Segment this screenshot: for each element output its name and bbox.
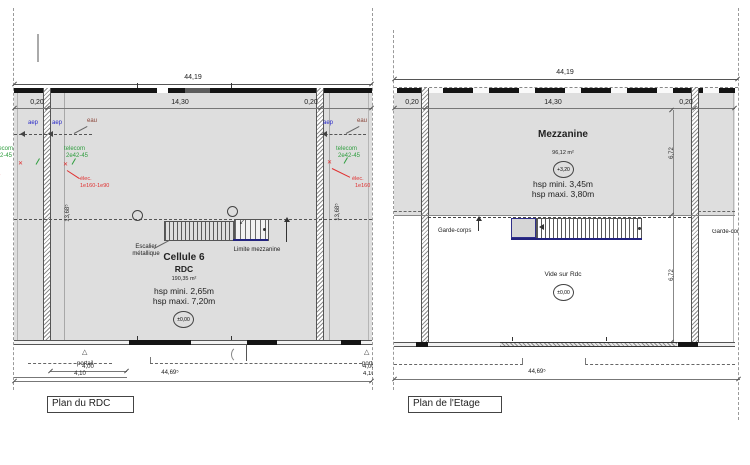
rdc-aep-line-left [14,134,92,135]
rdc-cut-line-right [372,8,373,390]
rdc-facade-mark [137,83,138,88]
grid-bubble [227,206,238,217]
rdc-facade-mark [231,83,232,88]
rdc-facade-mark [137,336,138,340]
etage-wall-bottom-panel [678,342,698,347]
rdc-room-name: Cellule 6 [134,252,234,264]
rdc-room-area: 190,35 m² [134,276,234,282]
etage-dim-line-top [394,79,738,80]
rdc-dim-line-depth-right [329,93,330,340]
etage-dim-void-depth: 6,72 [669,258,675,292]
rdc-opening-line [150,363,362,364]
etage-title: Plan de l'Etage [413,398,480,409]
etage-dim-total-top: 44,19 [515,69,615,77]
guardrail-label-left: Garde-corps [438,228,471,235]
rdc-line [368,93,369,340]
rdc-dim-line-gate2 [14,377,127,378]
rdc-wall-bottom-panel [341,340,361,345]
etage-hsp-max: hsp maxi. 3,80m [513,190,613,200]
etage-room-area: 96,12 m² [513,150,613,156]
stair-dot [638,227,641,230]
rdc-dim-depth-left: 13,68⁵ [65,196,71,230]
etage-stair-stringer [511,238,642,240]
rdc-dim-gate2: 4,10 [363,371,373,378]
rdc-extension-stub [37,34,39,62]
rdc-wall-bottom [14,340,372,345]
guardrail-line [394,211,421,212]
aep-label: aep [52,120,62,127]
rdc-dim-total-bottom: 44,69⁵ [140,370,200,377]
elec-label: élec. [352,176,364,182]
arrowhead-left [48,131,53,137]
elec-ref: 1e160-1e90 [80,183,109,189]
guardrail-arrow-line [478,221,479,231]
arrowhead-up [476,216,482,221]
gate-symbol: △ [364,349,369,357]
elec-label: élec. [80,176,92,182]
rdc-wall-bottom-panel [247,340,277,345]
etage-dim-wall-right: 0,20 [673,99,699,107]
etage-dim-bay: 14,30 [523,99,583,107]
etage-line [733,93,734,343]
floor-plan-sheet: 44,19 0,20 14,30 0,20 aep aep a [0,0,750,465]
etage-opening-line [394,364,523,365]
rdc-stair-stringer [233,239,268,241]
rdc-dim-gate1: 4,00 [363,364,373,371]
arrowhead-left [20,131,25,137]
arrowhead-up [284,217,290,222]
aep-label: aep [28,120,38,127]
etage-room-name: Mezzanine [513,129,613,141]
rdc-dim-depth-right: 13,68⁵ [335,195,341,229]
telecom-label: telecom [64,146,85,153]
grid-bubble [132,210,143,221]
elec-cross: ✕ [18,161,23,168]
etage-cut-line-right [738,8,739,420]
etage-opening-bracket [522,358,523,365]
telecom-ref: 2e42-45 [0,153,12,160]
elec-ref: 1e160 [355,183,370,189]
etage-wall-bottom-panel [416,342,428,347]
etage-mezz-edge [394,215,735,216]
rdc-dim-total-top: 44,19 [143,74,243,82]
rdc-title-box: Plan du RDC [47,396,134,413]
guardrail-label-right-clipped: Garde-corps [712,229,738,237]
downpipe-mark [512,337,513,341]
etage-dim-mezz-depth: 6,72 [669,136,675,170]
eau-label: eau [357,118,367,125]
etage-wall-bottom-hatched [500,342,677,347]
gate-symbol: △ [82,349,87,357]
etage-stair-landing [511,218,536,238]
elec-cross: ✕ [63,162,68,169]
rdc-party-wall-left [43,88,51,343]
rdc-room-level: RDC [134,265,234,275]
telecom-ref: 2e42-45 [338,153,360,160]
rdc-facade-mark [231,336,232,340]
rdc-dim-gate1: 4,00 [68,364,108,371]
tick [124,369,129,374]
guardrail-label-right: Garde-corps [712,229,738,236]
rdc-dim-gate2-clipped: 4,10 [363,371,373,379]
rdc-title: Plan du RDC [52,398,110,409]
etage-dim-wall-left: 0,20 [399,99,425,107]
elec-cross: ✕ [327,160,332,167]
stair-direction-arrow: ↙ [239,219,245,227]
rdc-level-mark: ±0,00 [173,311,194,328]
door-leaf [246,345,247,361]
etage-level-mark: +3,20 [553,161,574,178]
etage-title-box: Plan de l'Etage [408,396,502,413]
etage-dim-total-bottom: 44,69⁵ [507,369,567,376]
etage-stair-flight [536,218,642,239]
rdc-wall-bottom-panel [129,340,191,345]
telecom-label: telecom [0,146,13,153]
etage-dim-line-total-bottom [394,379,740,380]
guardrail-line [698,211,735,212]
downpipe-mark [606,337,607,341]
etage-dim-line-bay [394,108,735,109]
eau-label: eau [87,118,97,125]
telecom-ref: 2e42-45 [66,153,88,160]
rdc-opening-bracket [150,357,151,363]
void-label: Vide sur Rdc [513,271,613,278]
void-level-mark: ±0,00 [553,284,574,301]
rdc-dim-bay: 14,30 [150,99,210,107]
mezz-limit-arrow-line [286,222,287,242]
telecom-label: telecom [336,146,357,153]
rdc-dim-wall-left: 0,20 [24,99,50,107]
mezz-limit-label: Limite mezzanine [226,247,288,254]
etage-opening-line [585,364,735,365]
stair-direction-arrow [539,224,544,230]
rdc-hsp-max: hsp maxi. 7,20m [134,297,234,307]
rdc-dim-wall-right: 0,20 [298,99,324,107]
rdc-dim-line-total-bottom [14,381,372,382]
etage-opening-bracket [585,358,586,365]
rdc-line [17,93,18,340]
rdc-dim-line-top [14,84,372,85]
rdc-stair-flight-1 [164,221,236,241]
stair-dot [263,228,266,231]
aep-label: aep [323,120,333,127]
arrowhead-left [322,131,327,137]
